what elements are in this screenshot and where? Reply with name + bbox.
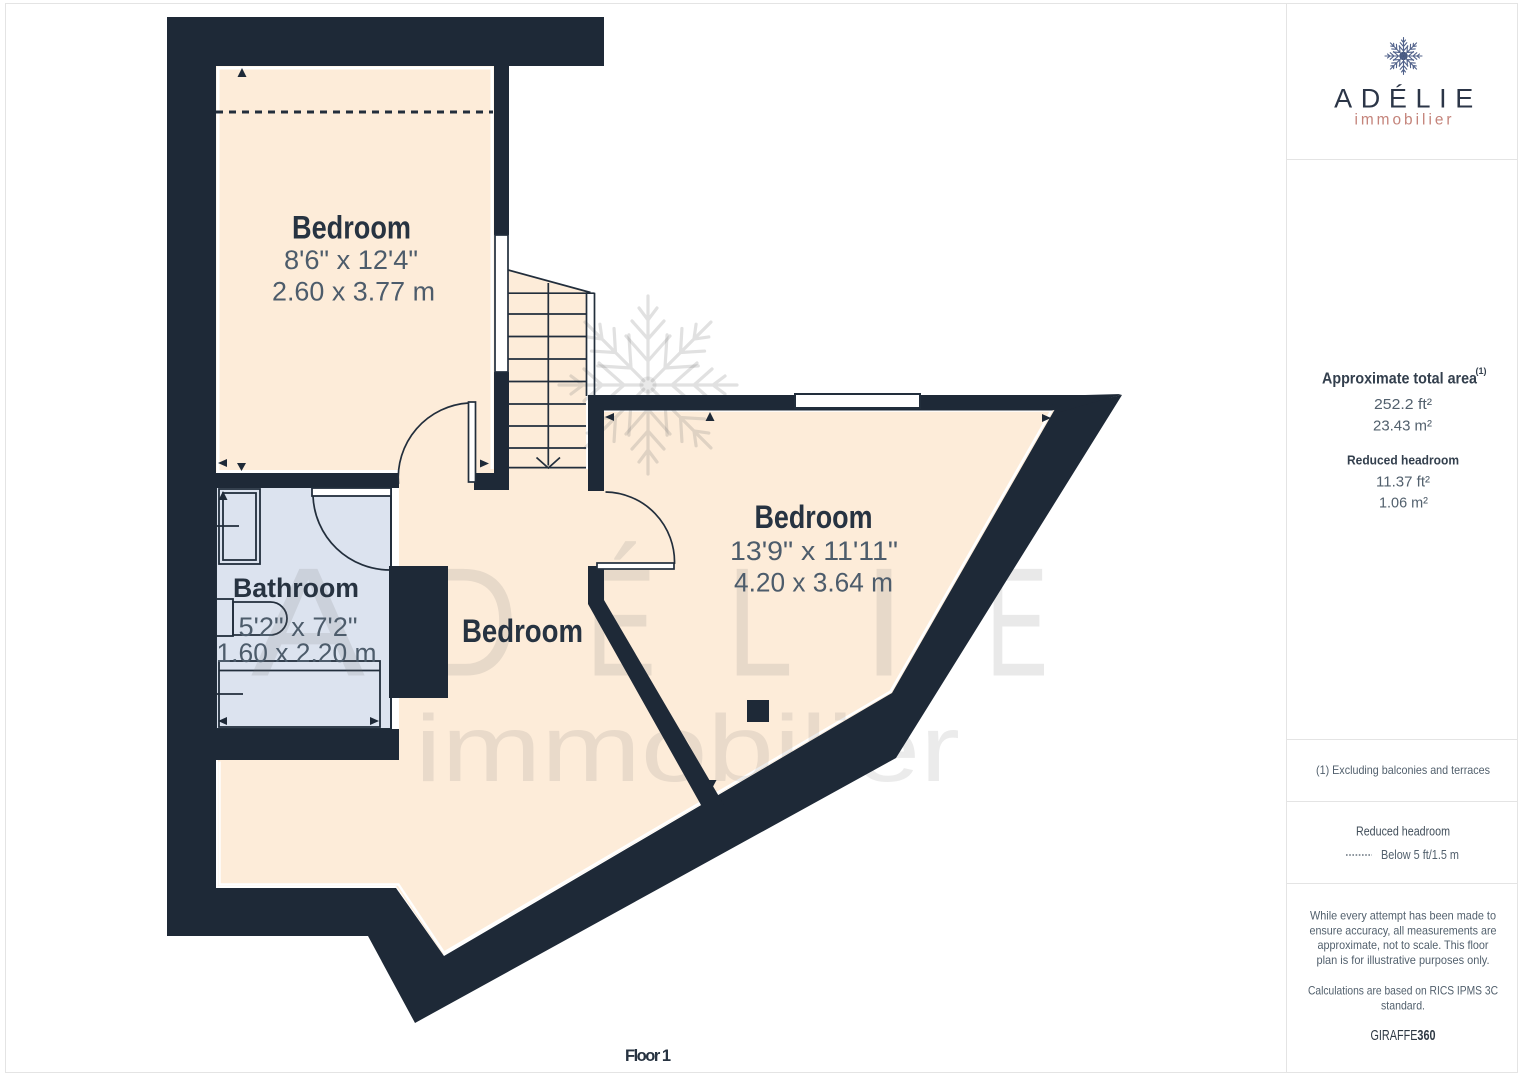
- svg-text:ADÉLIE: ADÉLIE: [1334, 84, 1482, 114]
- svg-text:4.20 x 3.64 m: 4.20 x 3.64 m: [734, 568, 893, 598]
- svg-text:plan is for illustrative purpo: plan is for illustrative purposes only.: [1317, 953, 1490, 967]
- svg-text:11.37 ft²: 11.37 ft²: [1376, 474, 1430, 491]
- svg-text:Bedroom: Bedroom: [755, 499, 873, 535]
- svg-text:1.60 x 2.20 m: 1.60 x 2.20 m: [217, 638, 377, 668]
- svg-text:Below 5 ft/1.5 m: Below 5 ft/1.5 m: [1381, 848, 1459, 862]
- svg-text:Floor 1: Floor 1: [625, 1047, 671, 1065]
- svg-text:Bedroom: Bedroom: [292, 210, 411, 246]
- svg-text:1.06 m²: 1.06 m²: [1379, 495, 1428, 512]
- svg-text:Bedroom: Bedroom: [462, 613, 583, 649]
- svg-text:13'9" x 11'11": 13'9" x 11'11": [730, 536, 898, 566]
- svg-text:(1): (1): [1476, 366, 1487, 376]
- svg-text:8'6" x 12'4": 8'6" x 12'4": [284, 245, 418, 275]
- svg-text:2.60 x 3.77 m: 2.60 x 3.77 m: [272, 277, 435, 307]
- svg-text:Reduced headroom: Reduced headroom: [1347, 454, 1459, 468]
- svg-text:immobilier: immobilier: [1354, 112, 1454, 129]
- svg-text:ensure accuracy, all measureme: ensure accuracy, all measurements are: [1310, 923, 1497, 937]
- svg-text:While every attempt has been m: While every attempt has been made to: [1310, 909, 1496, 923]
- svg-text:23.43 m²: 23.43 m²: [1373, 418, 1432, 435]
- svg-text:standard.: standard.: [1381, 999, 1425, 1013]
- svg-text:252.2 ft²: 252.2 ft²: [1374, 396, 1432, 413]
- svg-text:Bathroom: Bathroom: [233, 573, 359, 603]
- svg-text:(1) Excluding balconies and te: (1) Excluding balconies and terraces: [1316, 763, 1490, 777]
- svg-text:Calculations are based on RICS: Calculations are based on RICS IPMS 3C: [1308, 984, 1498, 998]
- svg-text:Approximate total area: Approximate total area: [1322, 371, 1477, 388]
- svg-text:Reduced headroom: Reduced headroom: [1356, 825, 1450, 839]
- svg-text:approximate, not to scale. Thi: approximate, not to scale. This floor: [1318, 938, 1489, 952]
- svg-text:GIRAFFE360: GIRAFFE360: [1371, 1027, 1436, 1044]
